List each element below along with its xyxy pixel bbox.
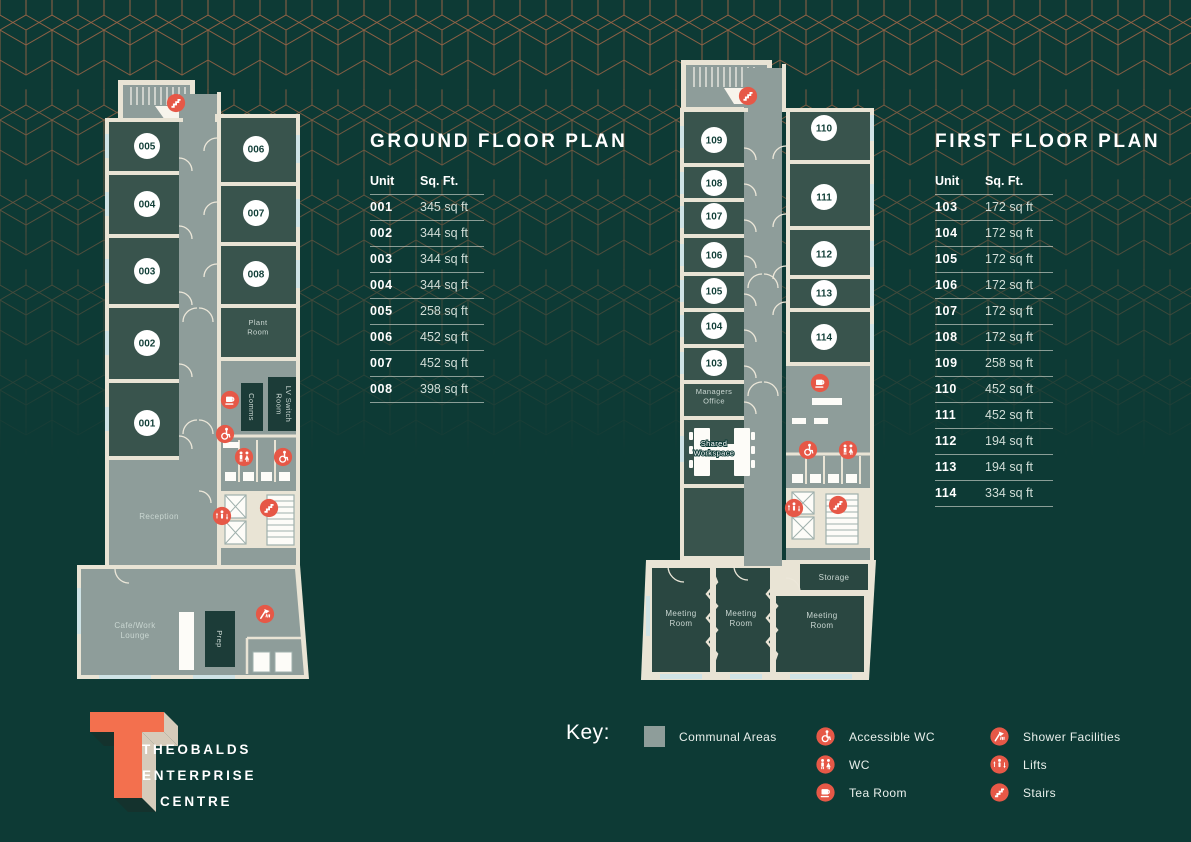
unit-sqft: 452 sq ft [420, 356, 468, 370]
tea-room-icon [816, 783, 835, 802]
wc-icon [839, 441, 857, 459]
legend-accessible-wc: Accessible WC [816, 727, 935, 746]
unit-sqft: 345 sq ft [420, 200, 468, 214]
stairs-icon [167, 94, 185, 112]
unit-number: 002 [370, 226, 420, 240]
table-row: 108 172 sq ft [935, 325, 1053, 351]
svg-text:114: 114 [816, 333, 833, 344]
lifts-icon [213, 507, 231, 525]
svg-text:107: 107 [706, 212, 723, 223]
table-row: 003 344 sq ft [370, 247, 484, 273]
unit-number: 108 [935, 330, 985, 344]
table-row: 001 345 sq ft [370, 195, 484, 221]
communal-swatch [644, 726, 665, 747]
unit-sqft: 258 sq ft [985, 356, 1033, 370]
stairs-icon [260, 499, 278, 517]
unit-sqft: 194 sq ft [985, 434, 1033, 448]
unit-badge: 103 [701, 350, 727, 376]
svg-text:112: 112 [816, 250, 833, 261]
first-floor-panel: FIRST FLOOR PLAN Unit Sq. Ft. 103 172 sq… [935, 131, 1160, 507]
table-row: 110 452 sq ft [935, 377, 1053, 403]
stairs-icon [829, 496, 847, 514]
table-row: 006 452 sq ft [370, 325, 484, 351]
unit-badge: 004 [134, 191, 160, 217]
svg-text:109: 109 [706, 136, 723, 147]
meeting-room-label: MeetingRoom [665, 609, 696, 628]
unit-badge: 108 [701, 170, 727, 196]
key-label: Key: [566, 721, 610, 745]
unit-badge: 109 [701, 127, 727, 153]
logo-line-3: CENTRE [142, 789, 256, 815]
unit-badge: 007 [243, 200, 269, 226]
table-row: 111 452 sq ft [935, 403, 1053, 429]
lifts-icon [990, 755, 1009, 774]
table-header: Unit Sq. Ft. [935, 169, 1053, 195]
col-unit: Unit [935, 174, 985, 188]
unit-sqft: 334 sq ft [985, 486, 1033, 500]
accessible-wc-icon [816, 727, 835, 746]
table-row: 007 452 sq ft [370, 351, 484, 377]
col-sqft: Sq. Ft. [420, 174, 458, 188]
unit-sqft: 172 sq ft [985, 278, 1033, 292]
storage-label: Storage [819, 573, 850, 582]
table-row: 114 334 sq ft [935, 481, 1053, 507]
svg-text:110: 110 [816, 124, 833, 135]
col-unit: Unit [370, 174, 420, 188]
unit-sqft: 398 sq ft [420, 382, 468, 396]
table-row: 008 398 sq ft [370, 377, 484, 403]
unit-number: 104 [935, 226, 985, 240]
unit-number: 105 [935, 252, 985, 266]
unit-badge: 110 [811, 115, 837, 141]
unit-sqft: 344 sq ft [420, 226, 468, 240]
svg-text:111: 111 [816, 193, 832, 204]
unit-sqft: 172 sq ft [985, 252, 1033, 266]
unit-number: 005 [370, 304, 420, 318]
wc-icon [235, 448, 253, 466]
table-row: 103 172 sq ft [935, 195, 1053, 221]
unit-badge: 105 [701, 278, 727, 304]
stairs-icon [990, 783, 1009, 802]
svg-text:105: 105 [706, 287, 723, 298]
svg-text:005: 005 [139, 142, 156, 153]
comms-label: Comms [247, 393, 256, 421]
unit-number: 004 [370, 278, 420, 292]
meeting-room-label: MeetingRoom [806, 611, 837, 630]
svg-text:007: 007 [248, 209, 265, 220]
prep-label: Prep [215, 630, 224, 647]
table-row: 106 172 sq ft [935, 273, 1053, 299]
tea-room-icon [221, 391, 239, 409]
unit-number: 112 [935, 434, 985, 448]
legend-communal: Communal Areas [644, 726, 777, 747]
legend-stairs: Stairs [990, 783, 1056, 802]
ground-floor-title: GROUND FLOOR PLAN [370, 131, 627, 153]
unit-number: 114 [935, 486, 985, 500]
accessible-wc-icon [799, 441, 817, 459]
legend-wc: WC [816, 755, 870, 774]
unit-number: 107 [935, 304, 985, 318]
legend-lifts: Lifts [990, 755, 1047, 774]
unit-number: 006 [370, 330, 420, 344]
unit-number: 111 [935, 408, 985, 422]
ground-floor-plan: 005 004 003 002 001 006 007 008 PlantRoo… [75, 78, 310, 686]
unit-sqft: 344 sq ft [420, 278, 468, 292]
table-row: 104 172 sq ft [935, 221, 1053, 247]
ground-floor-table: Unit Sq. Ft. 001 345 sq ft 002 344 sq ft… [370, 169, 484, 403]
svg-text:001: 001 [139, 419, 156, 430]
unit-number: 109 [935, 356, 985, 370]
svg-text:108: 108 [706, 179, 723, 190]
unit-badge: 006 [243, 136, 269, 162]
svg-text:104: 104 [706, 322, 723, 333]
unit-sqft: 344 sq ft [420, 252, 468, 266]
unit-number: 103 [935, 200, 985, 214]
unit-sqft: 452 sq ft [985, 382, 1033, 396]
unit-sqft: 172 sq ft [985, 330, 1033, 344]
first-floor-table: Unit Sq. Ft. 103 172 sq ft 104 172 sq ft… [935, 169, 1053, 507]
first-floor-plan: 109 108 107 106 105 104 103 110 111 112 … [638, 56, 878, 686]
accessible-wc-icon [274, 448, 292, 466]
unit-sqft: 172 sq ft [985, 304, 1033, 318]
unit-badge: 112 [811, 241, 837, 267]
unit-number: 001 [370, 200, 420, 214]
col-sqft: Sq. Ft. [985, 174, 1023, 188]
table-row: 112 194 sq ft [935, 429, 1053, 455]
unit-badge: 114 [811, 324, 837, 350]
unit-sqft: 452 sq ft [420, 330, 468, 344]
unit-number: 003 [370, 252, 420, 266]
logo-line-2: ENTERPRISE [142, 763, 256, 789]
logo-text: THEOBALDS ENTERPRISE CENTRE [142, 737, 256, 815]
unit-sqft: 172 sq ft [985, 200, 1033, 214]
unit-badge: 107 [701, 203, 727, 229]
unit-number: 110 [935, 382, 985, 396]
unit-badge: 106 [701, 242, 727, 268]
ground-floor-panel: GROUND FLOOR PLAN Unit Sq. Ft. 001 345 s… [370, 131, 627, 403]
table-row: 004 344 sq ft [370, 273, 484, 299]
unit-number: 106 [935, 278, 985, 292]
unit-badge: 111 [811, 184, 837, 210]
svg-text:113: 113 [816, 289, 833, 300]
unit-number: 113 [935, 460, 985, 474]
unit-badge: 003 [134, 258, 160, 284]
table-row: 002 344 sq ft [370, 221, 484, 247]
unit-number: 007 [370, 356, 420, 370]
unit-badge: 002 [134, 330, 160, 356]
legend-shower: Shower Facilities [990, 727, 1121, 746]
wc-icon [816, 755, 835, 774]
svg-text:002: 002 [139, 339, 156, 350]
svg-text:103: 103 [706, 359, 723, 370]
first-floor-title: FIRST FLOOR PLAN [935, 131, 1160, 153]
table-row: 109 258 sq ft [935, 351, 1053, 377]
reception-label: Reception [139, 512, 179, 521]
unit-badge: 104 [701, 313, 727, 339]
unit-badge: 113 [811, 280, 837, 306]
unit-sqft: 452 sq ft [985, 408, 1033, 422]
svg-text:006: 006 [248, 145, 265, 156]
table-row: 005 258 sq ft [370, 299, 484, 325]
svg-text:004: 004 [139, 200, 156, 211]
unit-sqft: 258 sq ft [420, 304, 468, 318]
svg-text:106: 106 [706, 251, 723, 262]
unit-badge: 001 [134, 410, 160, 436]
unit-sqft: 194 sq ft [985, 460, 1033, 474]
svg-text:008: 008 [248, 270, 265, 281]
table-row: 105 172 sq ft [935, 247, 1053, 273]
table-header: Unit Sq. Ft. [370, 169, 484, 195]
accessible-wc-icon [216, 425, 234, 443]
plant-room-label: PlantRoom [247, 318, 269, 336]
svg-text:003: 003 [139, 267, 156, 278]
legend-tea-room: Tea Room [816, 783, 907, 802]
unit-badge: 005 [134, 133, 160, 159]
unit-sqft: 172 sq ft [985, 226, 1033, 240]
table-row: 113 194 sq ft [935, 455, 1053, 481]
logo-line-1: THEOBALDS [142, 737, 256, 763]
unit-number: 008 [370, 382, 420, 396]
tea-room-icon [811, 374, 829, 392]
unit-badge: 008 [243, 261, 269, 287]
table-row: 107 172 sq ft [935, 299, 1053, 325]
shower-icon [990, 727, 1009, 746]
lifts-icon [785, 499, 803, 517]
meeting-room-label: MeetingRoom [725, 609, 756, 628]
stairs-icon [739, 87, 757, 105]
shower-icon [256, 605, 274, 623]
